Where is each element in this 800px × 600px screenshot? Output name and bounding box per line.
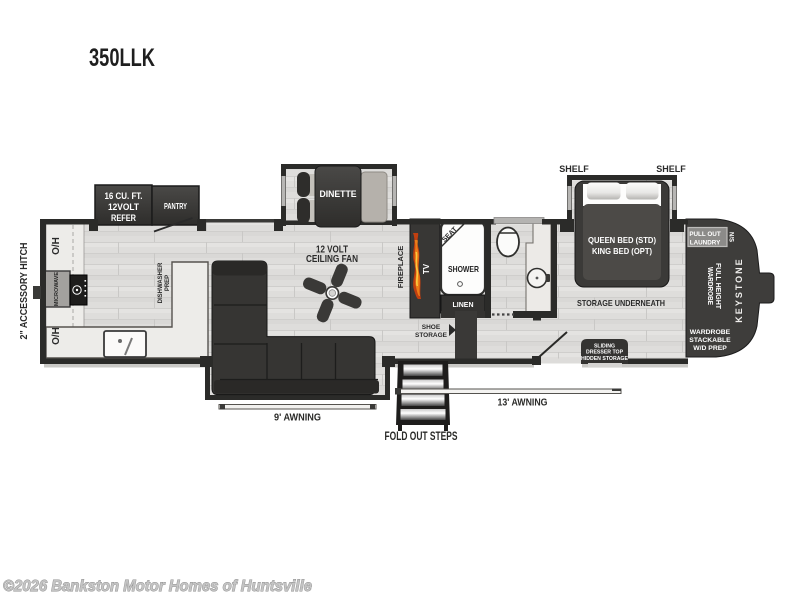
svg-text:DRESSER TOP: DRESSER TOP — [586, 350, 624, 356]
svg-text:KING BED (OPT): KING BED (OPT) — [592, 246, 652, 256]
svg-text:©2026 Bankston Motor Homes of: ©2026 Bankston Motor Homes of Huntsville — [3, 578, 312, 595]
svg-text:PANTRY: PANTRY — [164, 202, 187, 211]
svg-text:PREP: PREP — [165, 275, 171, 291]
svg-text:STORAGE UNDERNEATH: STORAGE UNDERNEATH — [577, 298, 665, 308]
svg-text:W/D PREP: W/D PREP — [693, 345, 727, 352]
svg-text:LINEN: LINEN — [453, 302, 474, 309]
svg-text:STACKABLE: STACKABLE — [689, 337, 731, 344]
svg-text:SHELF: SHELF — [656, 164, 686, 174]
svg-text:DISHWASHER: DISHWASHER — [158, 262, 164, 303]
svg-text:12VOLT: 12VOLT — [108, 202, 139, 213]
svg-text:SHELF: SHELF — [559, 164, 589, 174]
svg-text:350LLK: 350LLK — [89, 44, 155, 72]
svg-text:REFER: REFER — [111, 213, 136, 224]
svg-text:9' AWNING: 9' AWNING — [274, 412, 321, 424]
svg-text:WARDROBE: WARDROBE — [706, 267, 713, 305]
svg-text:MICROWAVE: MICROWAVE — [54, 272, 60, 306]
svg-text:HIDDEN STORAGE: HIDDEN STORAGE — [581, 356, 628, 362]
svg-text:SHOWER: SHOWER — [448, 264, 479, 274]
svg-text:STORAGE: STORAGE — [415, 332, 448, 339]
svg-text:LAUNDRY: LAUNDRY — [690, 240, 721, 247]
svg-text:WARDROBE: WARDROBE — [690, 329, 731, 336]
svg-text:FULL HEIGHT: FULL HEIGHT — [714, 263, 721, 310]
svg-text:FIREPLACE: FIREPLACE — [396, 246, 405, 289]
svg-text:N/S: N/S — [728, 232, 734, 242]
svg-text:16 CU. FT.: 16 CU. FT. — [105, 191, 143, 202]
svg-text:FOLD OUT STEPS: FOLD OUT STEPS — [385, 431, 458, 443]
svg-text:QUEEN BED (STD): QUEEN BED (STD) — [588, 235, 656, 245]
svg-text:SHOE: SHOE — [422, 324, 441, 331]
svg-text:TV: TV — [422, 263, 431, 274]
svg-text:PULL OUT: PULL OUT — [689, 231, 721, 238]
svg-text:2" ACCESSORY HITCH: 2" ACCESSORY HITCH — [18, 243, 30, 340]
svg-text:DINETTE: DINETTE — [320, 189, 357, 200]
svg-text:KEYSTONE: KEYSTONE — [734, 257, 744, 322]
svg-text:13' AWNING: 13' AWNING — [498, 397, 548, 409]
svg-text:O/H: O/H — [51, 327, 62, 345]
svg-text:O/H: O/H — [51, 237, 62, 255]
svg-text:CEILING FAN: CEILING FAN — [306, 254, 358, 265]
